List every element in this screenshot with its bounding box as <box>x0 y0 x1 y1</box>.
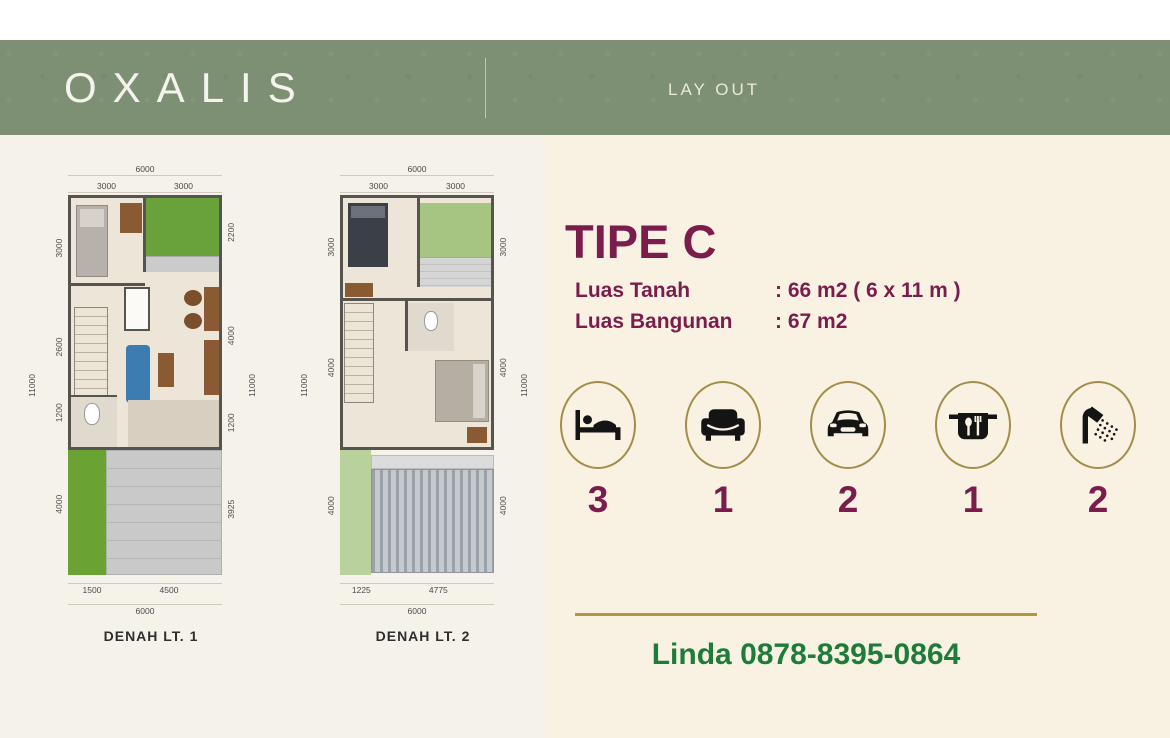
feature-carport: 2 <box>808 381 888 518</box>
dim-label: 1200 <box>224 403 238 443</box>
contact-info: Linda 0878-8395-0864 <box>575 638 1037 672</box>
dim-label: 4000 <box>324 437 338 575</box>
bed <box>435 360 489 422</box>
feature-circle <box>685 381 761 469</box>
floor-plan-1-drawing <box>68 195 222 575</box>
coffee-table <box>158 353 174 387</box>
dim-label: 4775 <box>383 583 494 595</box>
dim-label: 6000 <box>68 604 222 616</box>
dim-label: 3925 <box>224 443 238 575</box>
bed-icon <box>574 405 622 445</box>
roof-garden <box>420 203 491 257</box>
dim-label: 3000 <box>145 181 222 193</box>
paved-steps <box>420 257 491 287</box>
spec-value: : 67 m2 <box>775 306 847 337</box>
plan-title: DENAH LT. 1 <box>20 628 282 644</box>
dim-label: 1200 <box>52 392 66 434</box>
shower-icon <box>1074 405 1122 445</box>
interior-wall <box>143 198 146 272</box>
spec-row: Luas Tanah : 66 m2 ( 6 x 11 m ) <box>575 275 961 306</box>
dim-column-left: 3000 2600 1200 4000 <box>52 195 66 575</box>
roof <box>371 469 494 573</box>
nightstand <box>467 427 487 443</box>
brand-title: OXALIS <box>64 64 312 112</box>
dim-label: 11000 <box>518 195 530 575</box>
sofa <box>126 345 150 403</box>
spec-value: : 66 m2 ( 6 x 11 m ) <box>775 275 961 306</box>
dim-label: 4000 <box>496 437 510 575</box>
terrace <box>128 400 219 447</box>
dim-row-bottom: 1500 4500 <box>68 583 222 595</box>
floor-plan-2-drawing <box>340 195 494 575</box>
dim-label: 3000 <box>340 181 417 193</box>
header-divider <box>485 58 486 118</box>
dim-label: 4000 <box>224 269 238 403</box>
water-closet <box>124 287 150 331</box>
dining-chair <box>184 290 202 306</box>
floor-plan-2: 6000 3000 3000 11000 3000 4000 4000 <box>292 150 554 655</box>
dim-label: 11000 <box>26 195 38 575</box>
dining-table <box>204 287 219 331</box>
garden-patch <box>145 198 219 256</box>
feature-circle <box>810 381 886 469</box>
interior-wall <box>417 198 420 287</box>
dining-chair <box>184 313 202 329</box>
feature-count: 2 <box>838 481 859 518</box>
feature-living: 1 <box>683 381 763 518</box>
feature-kitchen: 1 <box>933 381 1013 518</box>
spec-list: Luas Tanah : 66 m2 ( 6 x 11 m ) Luas Ban… <box>575 275 961 337</box>
kitchen-counter <box>204 340 219 395</box>
front-garden <box>68 450 106 575</box>
feature-list: 3 1 <box>558 381 1138 518</box>
spec-label: Luas Bangunan <box>575 306 775 337</box>
header-band: OXALIS LAY OUT <box>0 40 1170 135</box>
roof-edge <box>371 455 494 469</box>
feature-count: 1 <box>963 481 984 518</box>
gold-divider <box>575 613 1037 616</box>
dim-label: 1500 <box>68 583 116 595</box>
sofa-icon <box>699 405 747 445</box>
feature-bedrooms: 3 <box>558 381 638 518</box>
toilet <box>84 403 100 425</box>
dim-column-left: 3000 4000 4000 <box>324 195 338 575</box>
dim-label: 6000 <box>68 164 222 176</box>
feature-bathrooms: 2 <box>1058 381 1138 518</box>
stairs <box>344 303 374 403</box>
master-bed <box>348 203 388 267</box>
dim-label: 2600 <box>52 301 66 392</box>
content-area: 6000 3000 3000 11000 3000 2600 1200 4000 <box>0 135 1170 738</box>
type-title: TIPE C <box>565 214 716 269</box>
dim-label: 3000 <box>68 181 145 193</box>
dim-label: 11000 <box>298 195 310 575</box>
wardrobe <box>120 203 142 233</box>
carport <box>106 450 222 575</box>
dim-label: 2200 <box>224 195 238 269</box>
dim-row-top: 3000 3000 <box>340 181 494 193</box>
dim-column-right: 2200 4000 1200 3925 <box>224 195 238 575</box>
side-garden <box>340 450 371 575</box>
dim-column-right: 3000 4000 4000 <box>496 195 510 575</box>
dim-label: 3000 <box>52 195 66 301</box>
interior-wall <box>343 298 491 301</box>
dim-label: 11000 <box>246 195 258 575</box>
paved-strip <box>145 256 219 272</box>
floor-plan-1: 6000 3000 3000 11000 3000 2600 1200 4000 <box>20 150 282 655</box>
feature-circle <box>935 381 1011 469</box>
plan-title: DENAH LT. 2 <box>292 628 554 644</box>
dim-label: 4000 <box>496 299 510 437</box>
spec-label: Luas Tanah <box>575 275 775 306</box>
dim-label: 1225 <box>340 583 383 595</box>
toilet <box>424 311 438 331</box>
dim-row-bottom: 1225 4775 <box>340 583 494 595</box>
dresser <box>345 283 373 297</box>
feature-count: 2 <box>1088 481 1109 518</box>
feature-circle <box>560 381 636 469</box>
spec-row: Luas Bangunan : 67 m2 <box>575 306 961 337</box>
dim-label: 3000 <box>324 195 338 299</box>
page-label: LAY OUT <box>668 80 760 100</box>
dim-label: 3000 <box>417 181 494 193</box>
feature-count: 1 <box>713 481 734 518</box>
dim-label: 4500 <box>116 583 222 595</box>
kitchen-icon <box>949 405 997 445</box>
dim-label: 6000 <box>340 164 494 176</box>
dim-label: 4000 <box>52 434 66 575</box>
feature-circle <box>1060 381 1136 469</box>
interior-wall <box>71 283 145 286</box>
dim-label: 3000 <box>496 195 510 299</box>
car-icon <box>824 405 872 445</box>
top-white-strip <box>0 0 1170 40</box>
dim-label: 4000 <box>324 299 338 437</box>
dim-row-top: 3000 3000 <box>68 181 222 193</box>
bed <box>76 205 108 277</box>
feature-count: 3 <box>588 481 609 518</box>
dim-label: 6000 <box>340 604 494 616</box>
